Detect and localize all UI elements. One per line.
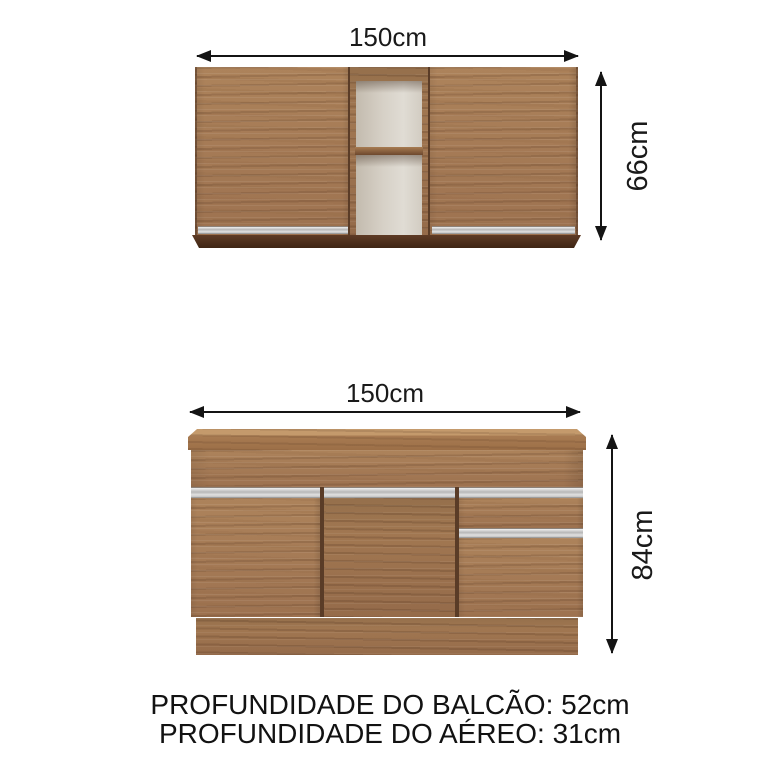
- lower-width-arrow: [190, 411, 580, 413]
- open-shelf-bottom-compartment: [356, 155, 422, 235]
- depth-note-balcao: PROFUNDIDADE DO BALCÃO: 52cm: [0, 690, 780, 719]
- lower-height-arrow: [611, 435, 613, 653]
- lower-right-handle-strip: [459, 487, 583, 498]
- depth-note-aereo: PROFUNDIDADE DO AÉREO: 31cm: [0, 719, 780, 748]
- arrowhead-down-icon: [595, 226, 607, 241]
- lower-left-door: [191, 498, 320, 617]
- lower-middle-door: [324, 498, 455, 617]
- drawer-handle-strip: [459, 528, 583, 538]
- arrowhead-up-icon: [606, 434, 618, 449]
- shelf-divider: [355, 147, 423, 155]
- arrowhead-right-icon: [564, 50, 579, 62]
- open-shelf-unit: [348, 67, 430, 235]
- arrowhead-left-icon: [196, 50, 211, 62]
- arrowhead-left-icon: [189, 406, 204, 418]
- lower-width-label: 150cm: [285, 378, 485, 409]
- upper-height-arrow: [600, 72, 602, 240]
- arrowhead-right-icon: [566, 406, 581, 418]
- upper-bottom-board: [192, 235, 581, 248]
- upper-width-arrow: [197, 55, 578, 57]
- upper-cabinet: [195, 67, 578, 248]
- lower-left-handle-strip: [191, 487, 320, 498]
- door-gap-line: [348, 67, 350, 235]
- upper-right-door: [430, 67, 578, 235]
- upper-width-label: 150cm: [288, 22, 488, 53]
- upper-left-door: [195, 67, 350, 235]
- plinth: [196, 618, 578, 655]
- lower-middle-handle-strip: [324, 487, 455, 498]
- lower-right-section: [459, 498, 583, 617]
- apron-panel: [191, 450, 583, 487]
- lower-doors-row: [191, 498, 583, 617]
- drawer-front: [459, 498, 583, 528]
- open-shelf-top-compartment: [356, 81, 422, 147]
- upper-left-door-handle-strip: [198, 226, 348, 234]
- handle-strip-row: [191, 487, 583, 498]
- upper-right-door-handle-strip: [432, 226, 575, 234]
- arrowhead-up-icon: [595, 71, 607, 86]
- product-dimension-diagram: 150cm 66cm 150c: [0, 0, 780, 780]
- countertop: [188, 429, 586, 450]
- lower-right-door: [459, 538, 583, 617]
- lower-height-label: 84cm: [627, 503, 659, 587]
- arrowhead-down-icon: [606, 639, 618, 654]
- upper-height-label: 66cm: [622, 114, 654, 198]
- lower-cabinet: [188, 429, 586, 655]
